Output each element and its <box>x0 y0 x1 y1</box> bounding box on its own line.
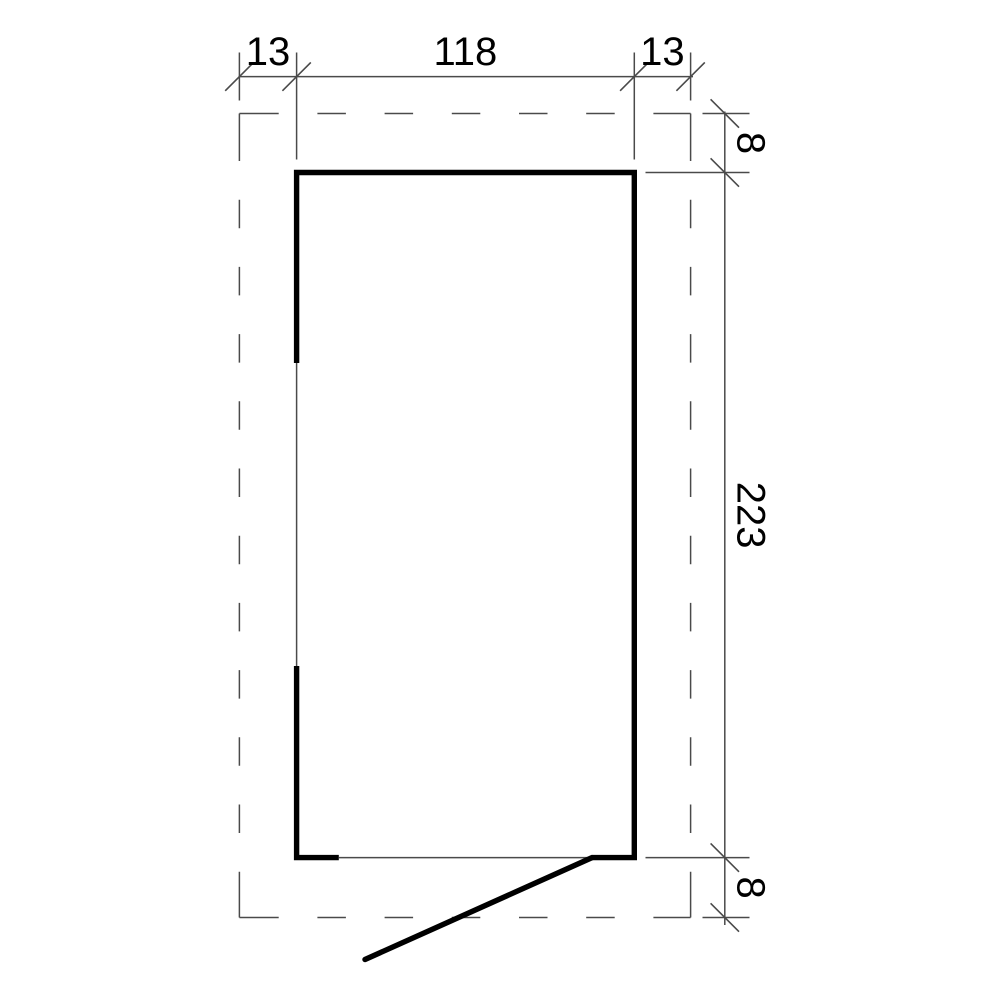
svg-text:118: 118 <box>434 30 498 74</box>
svg-text:13: 13 <box>246 30 291 74</box>
svg-text:8: 8 <box>729 876 773 898</box>
svg-text:13: 13 <box>640 30 685 74</box>
svg-text:223: 223 <box>729 482 773 549</box>
svg-text:8: 8 <box>729 132 773 154</box>
